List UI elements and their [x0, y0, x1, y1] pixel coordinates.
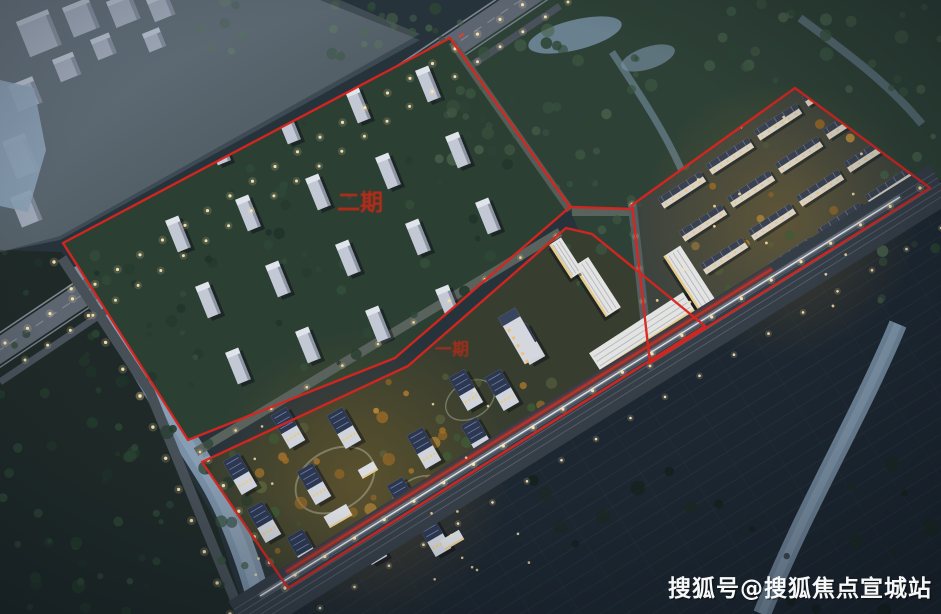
aerial-render-canvas: 二期 一期 搜狐号@搜狐焦点宣城站 搜狐号@搜狐焦点宣城站	[0, 0, 941, 614]
aerial-site-plan-screenshot: 二期 一期 搜狐号@搜狐焦点宣城站 搜狐号@搜狐焦点宣城站	[0, 0, 941, 614]
watermark-text: 搜狐号@搜狐焦点宣城站	[668, 575, 932, 602]
vignette	[0, 0, 941, 614]
